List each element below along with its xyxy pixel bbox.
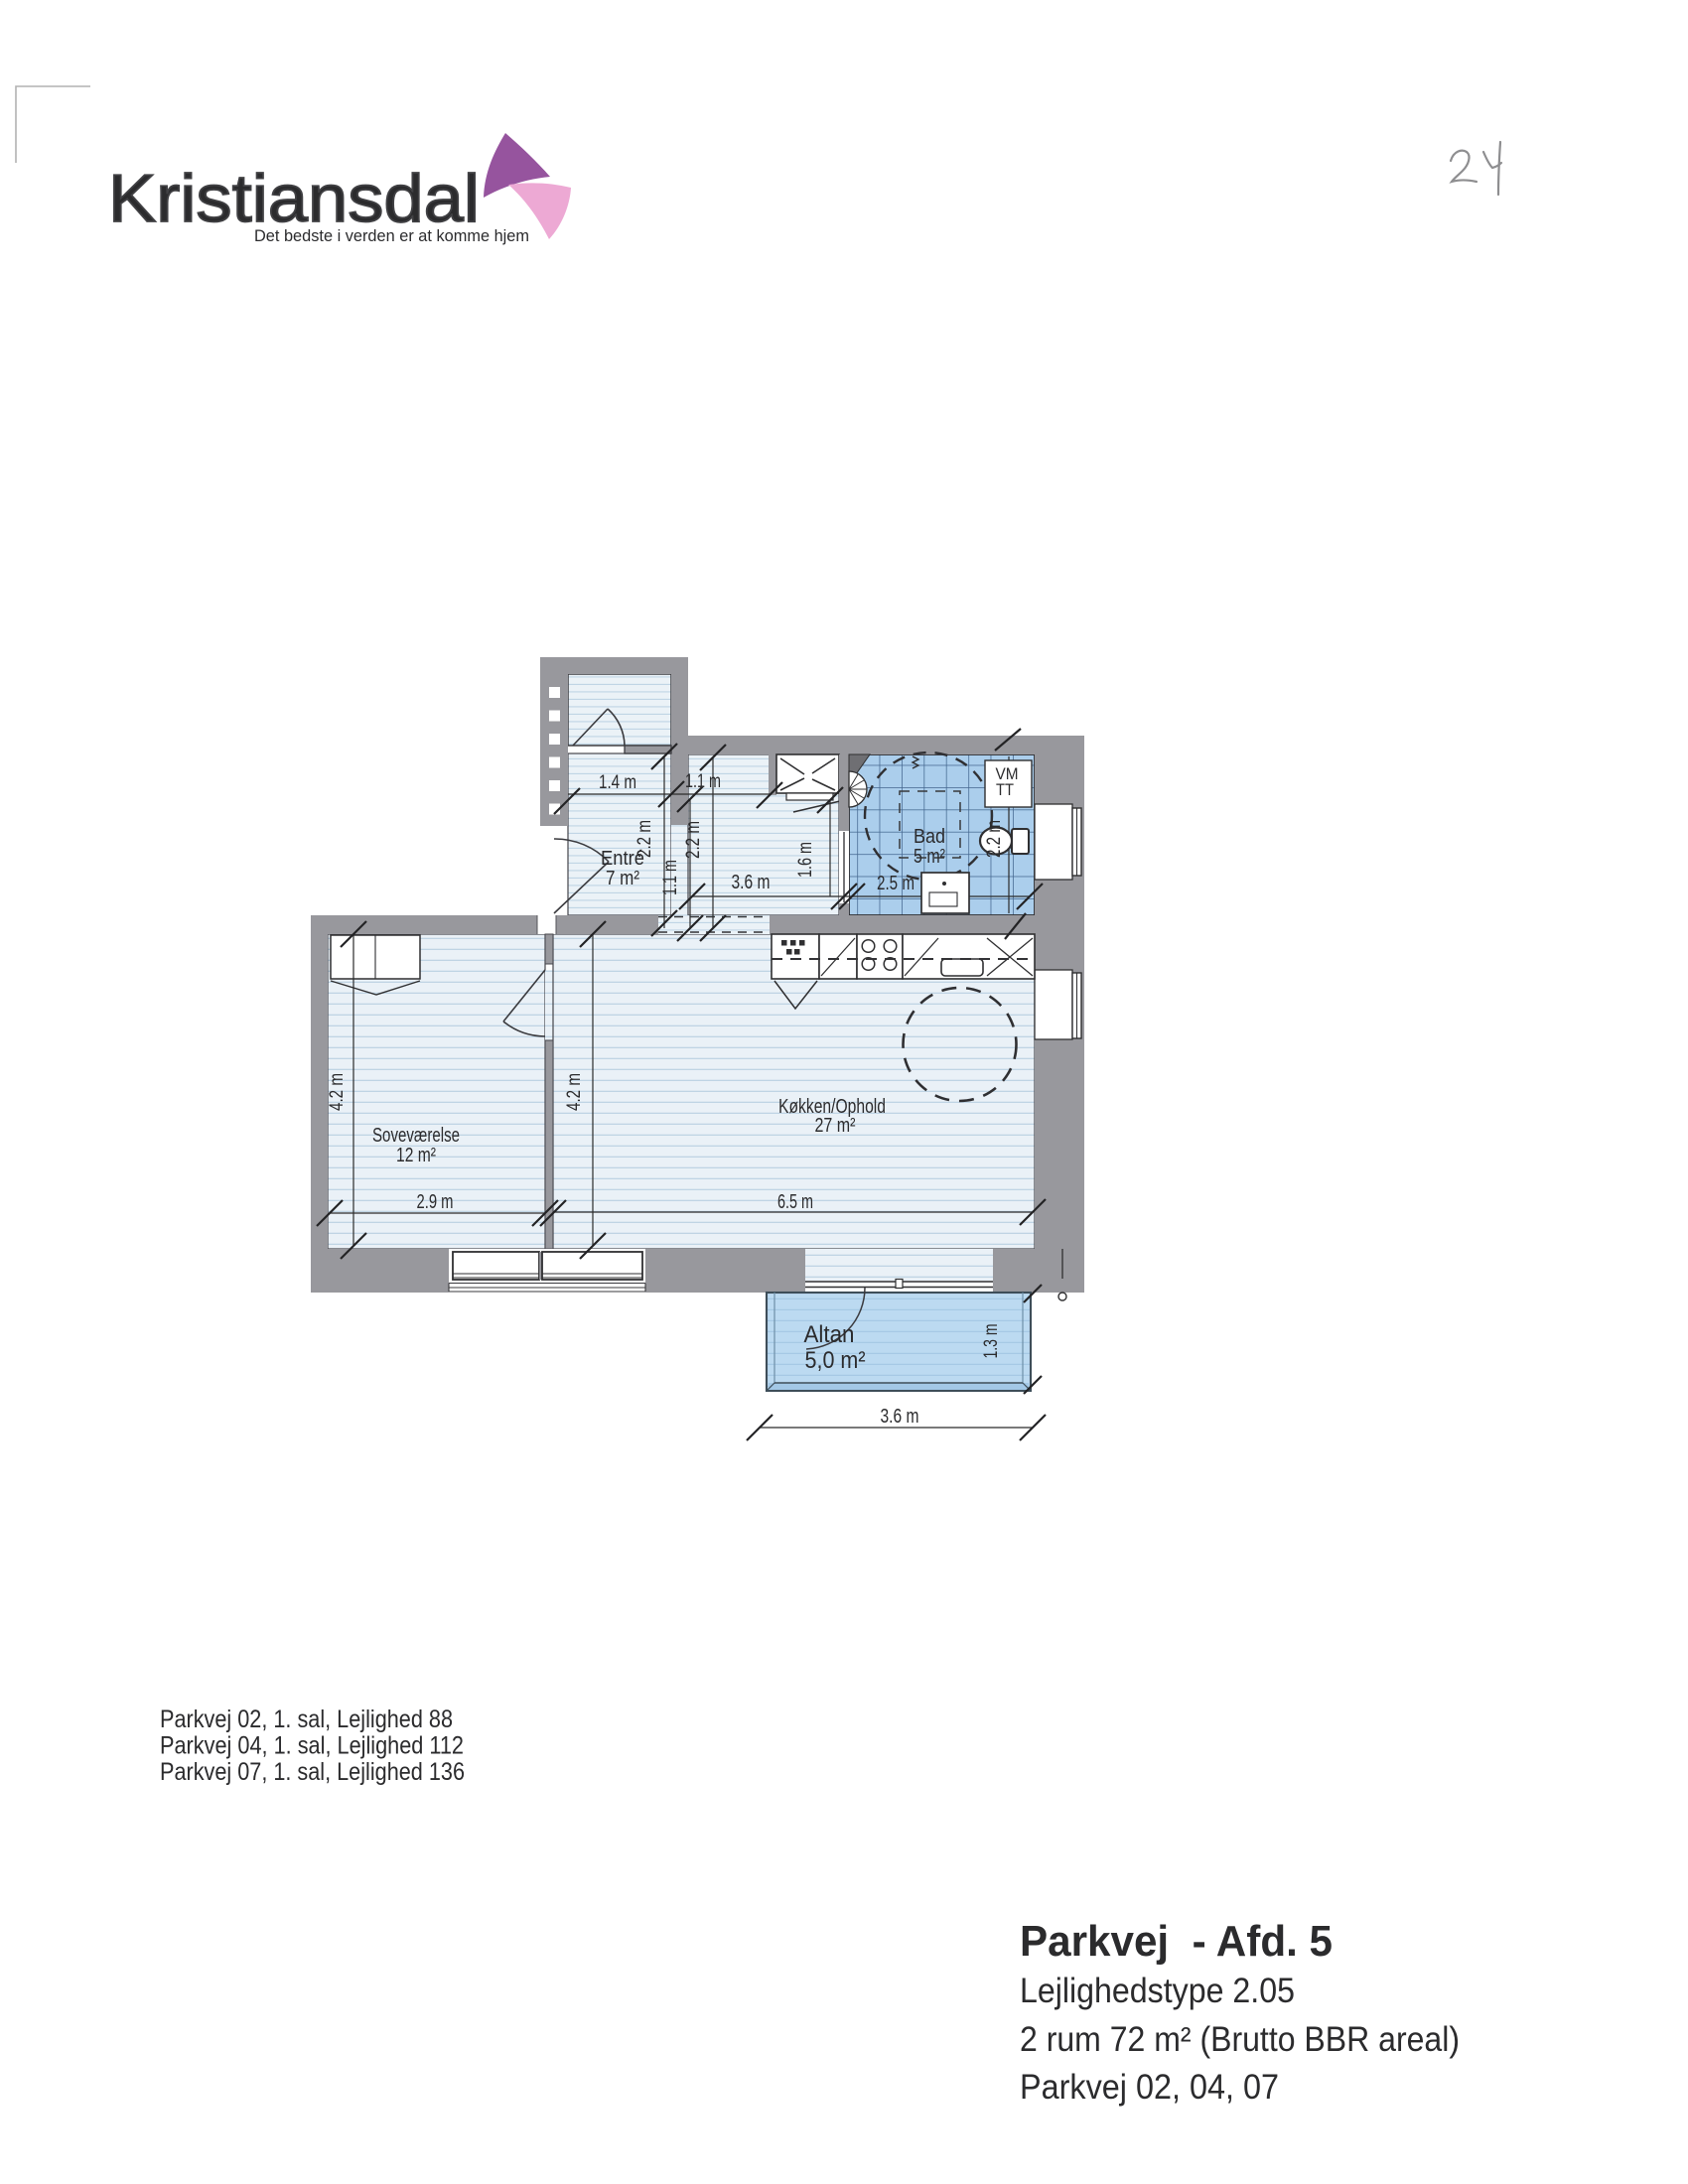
svg-text:5,0 m²: 5,0 m² bbox=[805, 1347, 866, 1374]
svg-text:27 m²: 27 m² bbox=[815, 1115, 856, 1137]
svg-text:Bad: Bad bbox=[914, 826, 945, 848]
svg-text:Soveværelse: Soveværelse bbox=[372, 1125, 460, 1147]
svg-text:Parkvej 02, 1. sal, Lejlighed: Parkvej 02, 1. sal, Lejlighed 88 bbox=[160, 1706, 453, 1733]
svg-text:1.4 m: 1.4 m bbox=[599, 772, 636, 793]
svg-text:Kristiansdal: Kristiansdal bbox=[108, 161, 480, 236]
svg-text:3.6 m: 3.6 m bbox=[881, 1406, 919, 1428]
svg-text:Parkvej 04, 1. sal, Lejlighed: Parkvej 04, 1. sal, Lejlighed 112 bbox=[160, 1732, 464, 1760]
svg-text:2.9 m: 2.9 m bbox=[417, 1191, 454, 1213]
svg-text:7 m²: 7 m² bbox=[606, 868, 639, 889]
svg-text:4.2 m: 4.2 m bbox=[564, 1073, 585, 1111]
svg-text:6.5 m: 6.5 m bbox=[777, 1191, 813, 1213]
svg-text:1.1 m: 1.1 m bbox=[685, 771, 721, 792]
svg-text:Parkvej 02, 04, 07: Parkvej 02, 04, 07 bbox=[1020, 2068, 1279, 2107]
svg-text:Det bedste i verden er at komm: Det bedste i verden er at komme hjem bbox=[254, 226, 529, 245]
svg-text:Lejlighedstype 2.05: Lejlighedstype 2.05 bbox=[1020, 1972, 1295, 2010]
svg-text:2 rum 72 m² (Brutto BBR areal): 2 rum 72 m² (Brutto BBR areal) bbox=[1020, 2020, 1460, 2059]
svg-text:1.3 m: 1.3 m bbox=[981, 1324, 1002, 1359]
svg-text:2.5 m: 2.5 m bbox=[877, 873, 914, 894]
svg-text:2.2 m: 2.2 m bbox=[634, 820, 655, 858]
svg-text:TT: TT bbox=[996, 780, 1014, 799]
svg-text:4.2 m: 4.2 m bbox=[327, 1073, 348, 1111]
svg-text:Parkvej - Afd. 5: Parkvej - Afd. 5 bbox=[1020, 1917, 1333, 1966]
svg-text:12 m²: 12 m² bbox=[396, 1145, 436, 1166]
svg-text:1.1 m: 1.1 m bbox=[660, 860, 681, 895]
svg-text:1.6 m: 1.6 m bbox=[795, 842, 816, 878]
svg-text:3.6 m: 3.6 m bbox=[732, 872, 771, 893]
svg-text:5 m²: 5 m² bbox=[914, 846, 945, 868]
svg-text:Parkvej 07, 1. sal, Lejlighed: Parkvej 07, 1. sal, Lejlighed 136 bbox=[160, 1758, 465, 1786]
svg-text:2.2 m: 2.2 m bbox=[683, 821, 704, 859]
svg-text:2.2 m: 2.2 m bbox=[984, 820, 1005, 858]
svg-text:Altan: Altan bbox=[804, 1321, 855, 1348]
